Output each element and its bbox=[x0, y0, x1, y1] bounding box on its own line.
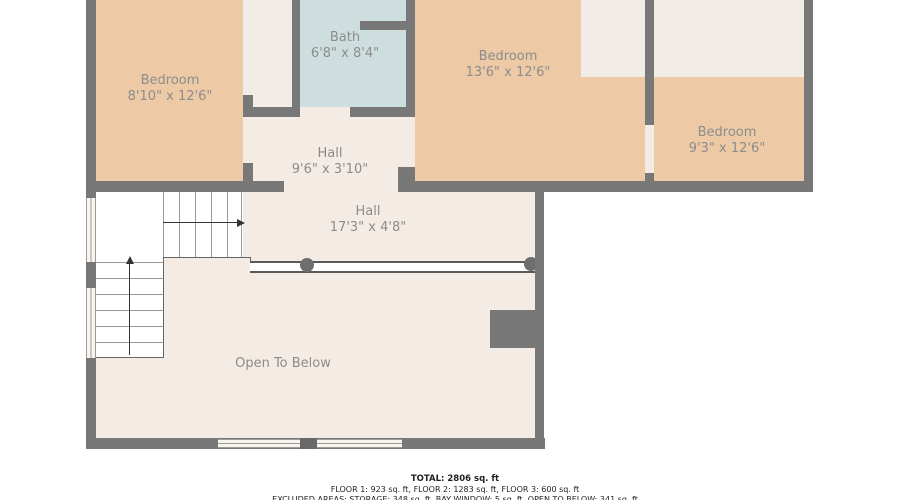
room-label-bath: Bath 6'8" x 8'4" bbox=[270, 30, 420, 62]
room-name: Open To Below bbox=[183, 356, 383, 372]
room-name: Hall bbox=[293, 204, 443, 220]
stair-arrow-up-icon bbox=[126, 256, 134, 264]
closet-right-floor bbox=[654, 0, 804, 77]
room-label-bedroom-left: Bedroom 8'10" x 12'6" bbox=[95, 73, 245, 105]
room-name: Bedroom bbox=[95, 73, 245, 89]
stair-bottom-line bbox=[96, 357, 163, 358]
room-dims: 9'6" x 3'10" bbox=[255, 162, 405, 178]
stair-landing bbox=[96, 192, 163, 257]
room-dims: 6'8" x 8'4" bbox=[270, 46, 420, 62]
room-name: Bedroom bbox=[433, 49, 583, 65]
wall-bath-inner bbox=[360, 21, 406, 30]
stair-step-line bbox=[179, 192, 180, 257]
wall-bottom-pier bbox=[300, 438, 317, 449]
room-label-bedroom-middle: Bedroom 13'6" x 12'6" bbox=[433, 49, 583, 81]
wall-hall-stub bbox=[243, 163, 253, 192]
railing bbox=[250, 261, 535, 273]
window-left-upper bbox=[86, 198, 96, 262]
railing-post bbox=[300, 258, 314, 272]
stair-step-line bbox=[195, 192, 196, 257]
floor-plan: Bedroom 8'10" x 12'6" Bath 6'8" x 8'4" B… bbox=[0, 0, 900, 500]
stair-arrow-right-icon bbox=[237, 219, 245, 227]
room-name: Hall bbox=[255, 146, 405, 162]
footer-total: TOTAL: 2806 sq. ft bbox=[10, 474, 900, 484]
wall-bedroom-divider bbox=[645, 0, 654, 125]
footer-floors: FLOOR 1: 923 sq. ft, FLOOR 2: 1283 sq. f… bbox=[10, 485, 900, 495]
wall-chimney-block bbox=[490, 310, 544, 348]
room-label-hall-lower: Hall 17'3" x 4'8" bbox=[293, 204, 443, 236]
room-dims: 17'3" x 4'8" bbox=[293, 220, 443, 236]
door-gap-middle bbox=[406, 117, 415, 167]
room-name: Bath bbox=[270, 30, 420, 46]
window-bottom-left bbox=[218, 439, 300, 448]
room-name: Bedroom bbox=[652, 125, 802, 141]
window-left-lower bbox=[86, 288, 96, 358]
stair-arrow-line bbox=[163, 222, 237, 223]
room-dims: 8'10" x 12'6" bbox=[95, 89, 245, 105]
window-bottom-right bbox=[317, 439, 402, 448]
stair-step-line bbox=[211, 192, 212, 257]
wall-bedrooms-bottom-right bbox=[398, 181, 813, 192]
open-edge-line bbox=[163, 257, 251, 258]
wall-bedroom-divider-stub bbox=[645, 173, 654, 192]
open-edge-line bbox=[163, 257, 164, 358]
stair-arrow-line bbox=[129, 264, 130, 355]
room-dims: 13'6" x 12'6" bbox=[433, 65, 583, 81]
closet-middle-floor bbox=[581, 0, 645, 77]
stair-step-line bbox=[163, 192, 164, 257]
room-label-hall-upper: Hall 9'6" x 3'10" bbox=[255, 146, 405, 178]
room-label-open-to-below: Open To Below bbox=[183, 356, 383, 372]
wall-bedrooms-bottom-left bbox=[86, 181, 284, 192]
stair-step-line bbox=[227, 192, 228, 257]
room-dims: 9'3" x 12'6" bbox=[652, 141, 802, 157]
stair-flight-upper bbox=[163, 192, 243, 257]
wall-right-outer bbox=[804, 0, 813, 192]
room-label-bedroom-right: Bedroom 9'3" x 12'6" bbox=[652, 125, 802, 157]
footer-excluded: EXCLUDED AREAS: STORAGE: 348 sq. ft, BAY… bbox=[10, 495, 900, 500]
